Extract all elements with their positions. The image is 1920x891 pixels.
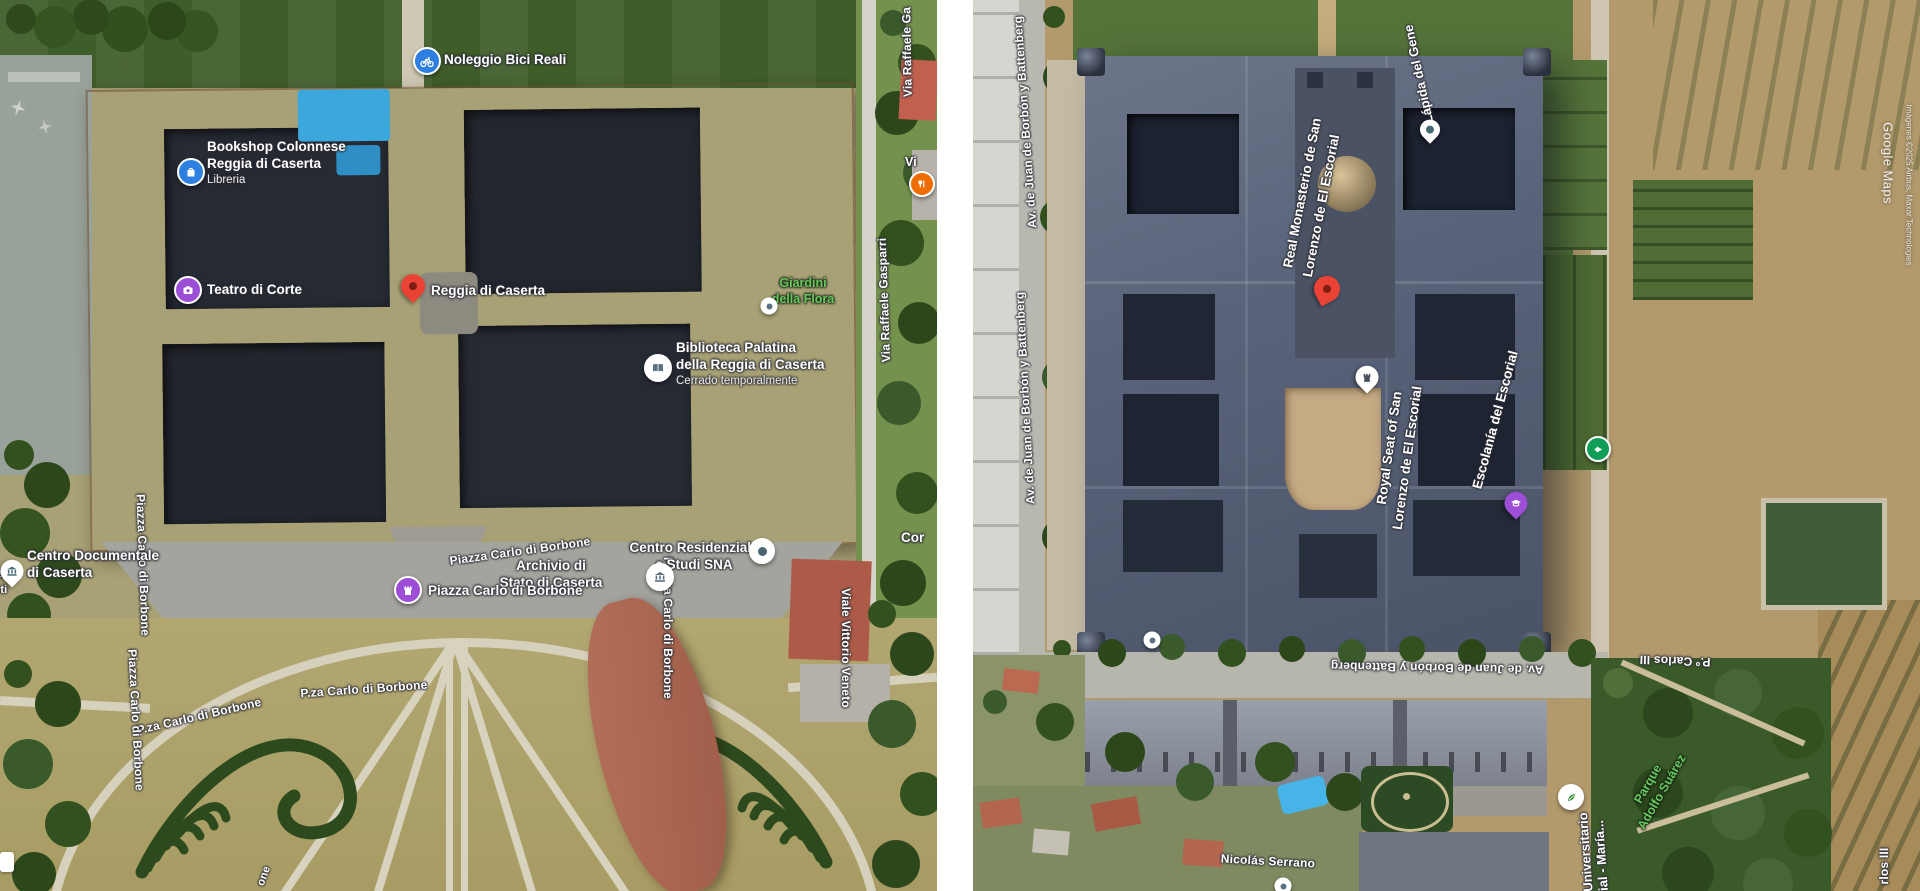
camera-icon[interactable] bbox=[174, 276, 202, 304]
pin-dot bbox=[1323, 285, 1331, 293]
leaf-glyph bbox=[1565, 791, 1578, 804]
bank-icon[interactable] bbox=[646, 563, 674, 591]
monument-glyph bbox=[1361, 371, 1374, 384]
monastery-courtyard bbox=[1415, 294, 1515, 380]
hedge-plot bbox=[1633, 180, 1753, 300]
construction-tarp bbox=[298, 89, 391, 142]
book-glyph bbox=[651, 361, 665, 375]
corner-tower bbox=[1077, 48, 1105, 76]
shopping-bag-icon[interactable] bbox=[177, 158, 205, 186]
poi-label-centro-documentale[interactable]: Centro Documentale di Caserta bbox=[27, 548, 159, 582]
poi-name-line2: di Caserta bbox=[27, 565, 159, 582]
tree-cluster-top bbox=[6, 4, 36, 34]
memorial-glyph bbox=[1426, 126, 1434, 134]
restaurant-icon[interactable] bbox=[909, 171, 935, 197]
street-label-paseo-flipped: P.º Carlos III bbox=[1639, 653, 1710, 669]
place-dot-icon[interactable] bbox=[749, 538, 775, 564]
poi-status: Cerrado temporalmente bbox=[676, 374, 825, 388]
restaurant-glyph bbox=[916, 178, 928, 190]
leaf-icon[interactable] bbox=[1558, 784, 1584, 810]
arcade-arches bbox=[1085, 752, 1547, 772]
arrow-glyph bbox=[1592, 443, 1605, 456]
poi-name: Centro Residenziale bbox=[629, 540, 758, 557]
unlabeled-poi-icon[interactable] bbox=[1275, 878, 1292, 891]
left-map-caserta[interactable]: Noleggio Bici Reali Bookshop Colonnese R… bbox=[0, 0, 937, 891]
poi-subtitle: Libreria bbox=[207, 173, 346, 187]
unlabeled-poi-icon[interactable] bbox=[761, 298, 778, 315]
park-name: Giardini bbox=[772, 275, 835, 291]
patio-tan bbox=[1285, 388, 1381, 510]
park-label-giardini[interactable]: Giardini della Flora bbox=[772, 275, 835, 308]
poi-dot-glyph bbox=[1280, 883, 1286, 889]
basilica bbox=[1295, 68, 1395, 358]
poi-name: Centro Documentale bbox=[27, 548, 159, 565]
tree-row-avenue bbox=[1043, 6, 1065, 28]
ornate-garden-ellipse bbox=[1371, 772, 1449, 832]
roof-ridge bbox=[1245, 56, 1248, 652]
poi-label-vi-partial[interactable]: Vi bbox=[905, 155, 917, 171]
poi-dot-glyph bbox=[1149, 637, 1155, 643]
runway-strip bbox=[8, 72, 80, 82]
basilica-tower bbox=[1307, 72, 1323, 88]
garden-fountain bbox=[1403, 793, 1410, 800]
poi-label-noleggio[interactable]: Noleggio Bici Reali bbox=[444, 52, 566, 69]
palace-building bbox=[86, 82, 859, 552]
tree-cluster-residential bbox=[983, 690, 1007, 714]
reservoir-pond bbox=[1761, 498, 1887, 610]
airplane-icon bbox=[34, 116, 55, 137]
building-south-center bbox=[1359, 832, 1549, 891]
formal-gardens-east bbox=[1543, 60, 1607, 250]
tree-cluster-southwest bbox=[4, 660, 32, 688]
poi-name: Biblioteca Palatina bbox=[676, 340, 825, 357]
graduation-cap-glyph bbox=[1510, 497, 1523, 510]
unlabeled-poi-icon[interactable] bbox=[1144, 632, 1161, 649]
street-label-raffaele-top: Via Raffaele Ga bbox=[899, 7, 915, 97]
poi-label-teatro[interactable]: Teatro di Corte bbox=[207, 282, 302, 299]
poi-dot-glyph bbox=[766, 303, 772, 309]
poi-name-line2: Reggia di Caserta bbox=[207, 156, 346, 173]
building-gap bbox=[1223, 700, 1237, 786]
hedge-parterre-left bbox=[128, 712, 393, 880]
basilica-tower bbox=[1357, 72, 1373, 88]
palace-courtyard bbox=[162, 342, 386, 524]
buildings-west-edge bbox=[973, 0, 1019, 655]
poi-label-piazza-carlo[interactable]: Piazza Carlo di Borbone bbox=[428, 583, 583, 600]
poi-name: Bookshop Colonnese bbox=[207, 139, 346, 156]
monastery-courtyard bbox=[1123, 500, 1223, 572]
poi-label-cor-partial[interactable]: Cor bbox=[901, 530, 924, 547]
castle-glyph bbox=[401, 583, 415, 597]
poi-name: Archivio di bbox=[500, 558, 603, 575]
pin-dot bbox=[409, 282, 417, 290]
monastery-courtyard bbox=[1123, 394, 1219, 486]
camera-glyph bbox=[181, 283, 195, 297]
monastery-courtyard bbox=[1403, 108, 1515, 210]
lawn-north bbox=[0, 0, 937, 88]
park-name-line2: della Flora bbox=[772, 291, 835, 307]
palace-central-hall bbox=[420, 272, 479, 335]
bag-glyph bbox=[184, 165, 198, 179]
tree-cluster-southeast bbox=[868, 600, 896, 628]
bank-glyph bbox=[653, 570, 667, 584]
poi-label-reggia[interactable]: Reggia di Caserta bbox=[431, 283, 545, 300]
poi-name-line2: della Reggia di Caserta bbox=[676, 357, 825, 374]
bicycle-icon[interactable] bbox=[413, 47, 441, 75]
museum-glyph bbox=[5, 565, 18, 578]
dual-satellite-map-screenshot: Noleggio Bici Reali Bookshop Colonnese R… bbox=[0, 0, 1920, 891]
place-dot-glyph bbox=[758, 547, 767, 556]
house-red-roof bbox=[1182, 839, 1224, 868]
castle-icon[interactable] bbox=[394, 576, 422, 604]
street-label-fragment: sti bbox=[0, 584, 7, 596]
house-red-roof bbox=[979, 797, 1022, 828]
palace-courtyard bbox=[458, 324, 692, 508]
lawn-path bbox=[402, 0, 424, 88]
imagery-attribution: Imágenes ©2025 Airbus, Maxar Technologie… bbox=[1905, 105, 1914, 266]
long-building-south bbox=[1085, 700, 1547, 786]
book-icon[interactable] bbox=[644, 354, 672, 382]
monastery-courtyard bbox=[1123, 294, 1215, 380]
monastery-courtyard bbox=[1127, 114, 1239, 214]
house-red-roof bbox=[1002, 668, 1040, 694]
monastery-courtyard bbox=[1413, 500, 1520, 576]
clipped-label-chip bbox=[0, 852, 14, 872]
poi-label-bookshop[interactable]: Bookshop Colonnese Reggia di Caserta Lib… bbox=[207, 139, 346, 187]
tree-cluster-west bbox=[4, 440, 34, 470]
bicycle-glyph bbox=[420, 54, 434, 68]
orchard-rows-southeast bbox=[1818, 600, 1920, 891]
monastery-courtyard bbox=[1299, 534, 1377, 598]
street-label-viale: Viale Vittorio Veneto bbox=[839, 588, 853, 708]
navigation-arrow-icon[interactable] bbox=[1585, 436, 1611, 462]
palace-courtyard bbox=[464, 108, 702, 294]
road-east bbox=[862, 0, 876, 648]
building-red-roof bbox=[788, 559, 871, 662]
museum-pin-icon[interactable] bbox=[0, 555, 28, 588]
tree-cluster-park bbox=[1603, 668, 1633, 698]
right-map-escorial[interactable]: Av. de Juan de Borbón y Battenberg Av. d… bbox=[973, 0, 1920, 891]
house bbox=[1032, 828, 1070, 855]
street-label-carlos-fragment: rlos III bbox=[1877, 848, 1891, 885]
google-maps-watermark: Google Maps bbox=[1881, 122, 1896, 204]
lonja-esplanade bbox=[1047, 60, 1085, 650]
corner-tower bbox=[1523, 48, 1551, 76]
poi-label-biblioteca[interactable]: Biblioteca Palatina della Reggia di Case… bbox=[676, 340, 825, 388]
